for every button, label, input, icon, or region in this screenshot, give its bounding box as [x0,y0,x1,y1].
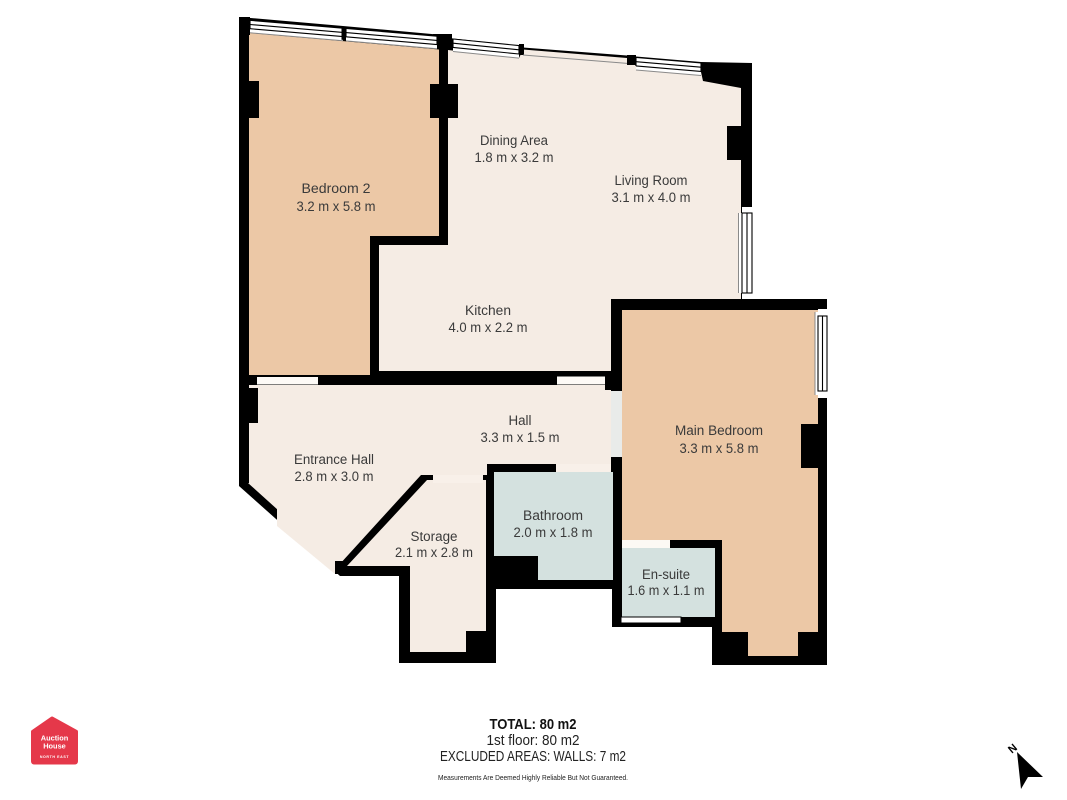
svg-text:En-suite: En-suite [642,567,690,582]
svg-text:2.1 m x 2.8 m: 2.1 m x 2.8 m [395,545,473,560]
svg-text:3.3 m x 1.5 m: 3.3 m x 1.5 m [481,430,560,445]
svg-text:EXCLUDED AREAS: WALLS: 7 m2: EXCLUDED AREAS: WALLS: 7 m2 [440,748,626,765]
svg-text:Measurements Are Deemed Highly: Measurements Are Deemed Highly Reliable … [438,773,628,782]
svg-text:Kitchen: Kitchen [465,303,511,318]
svg-text:Hall: Hall [509,413,532,428]
svg-text:1st floor: 80 m2: 1st floor: 80 m2 [487,732,580,749]
svg-text:TOTAL: 80 m2: TOTAL: 80 m2 [490,716,577,733]
svg-text:Main Bedroom: Main Bedroom [675,423,763,438]
svg-text:2.8 m x 3.0 m: 2.8 m x 3.0 m [295,469,374,484]
svg-text:Bedroom 2: Bedroom 2 [302,181,371,196]
svg-text:Storage: Storage [411,529,458,544]
svg-text:Bathroom: Bathroom [523,508,583,523]
svg-text:2.0 m x 1.8 m: 2.0 m x 1.8 m [514,525,593,540]
svg-text:1.8 m x 3.2 m: 1.8 m x 3.2 m [475,150,554,165]
svg-text:Living Room: Living Room [615,173,688,188]
svg-text:NORTH EAST: NORTH EAST [40,755,70,759]
svg-text:Entrance Hall: Entrance Hall [294,452,374,467]
svg-text:House: House [43,742,66,751]
svg-text:4.0 m x 2.2 m: 4.0 m x 2.2 m [449,320,528,335]
svg-text:Dining Area: Dining Area [480,133,548,148]
svg-text:3.3 m x 5.8 m: 3.3 m x 5.8 m [680,441,759,456]
svg-text:1.6 m x 1.1 m: 1.6 m x 1.1 m [628,583,705,598]
svg-text:3.1 m x 4.0 m: 3.1 m x 4.0 m [612,190,691,205]
svg-text:3.2 m x 5.8 m: 3.2 m x 5.8 m [297,199,376,214]
